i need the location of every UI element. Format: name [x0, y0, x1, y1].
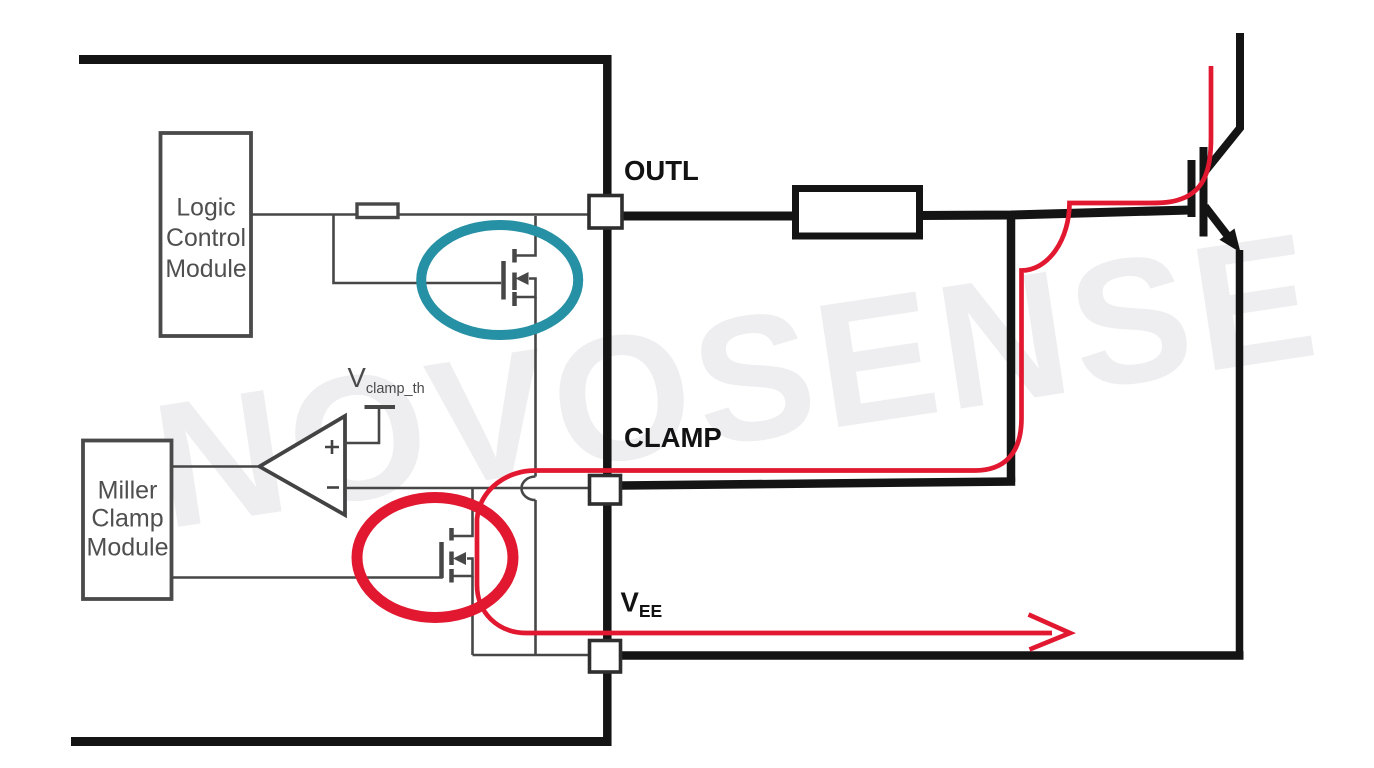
svg-text:Control: Control — [166, 225, 246, 252]
svg-text:NOVOSENSE: NOVOSENSE — [142, 194, 1331, 566]
svg-text:VEE: VEE — [621, 587, 663, 622]
svg-text:Module: Module — [165, 256, 246, 283]
svg-text:OUTL: OUTL — [624, 155, 699, 186]
svg-text:Miller: Miller — [98, 477, 158, 505]
svg-text:Clamp: Clamp — [91, 505, 163, 533]
svg-text:CLAMP: CLAMP — [624, 422, 722, 453]
svg-text:Logic: Logic — [176, 195, 235, 222]
svg-text:Module: Module — [87, 534, 169, 562]
